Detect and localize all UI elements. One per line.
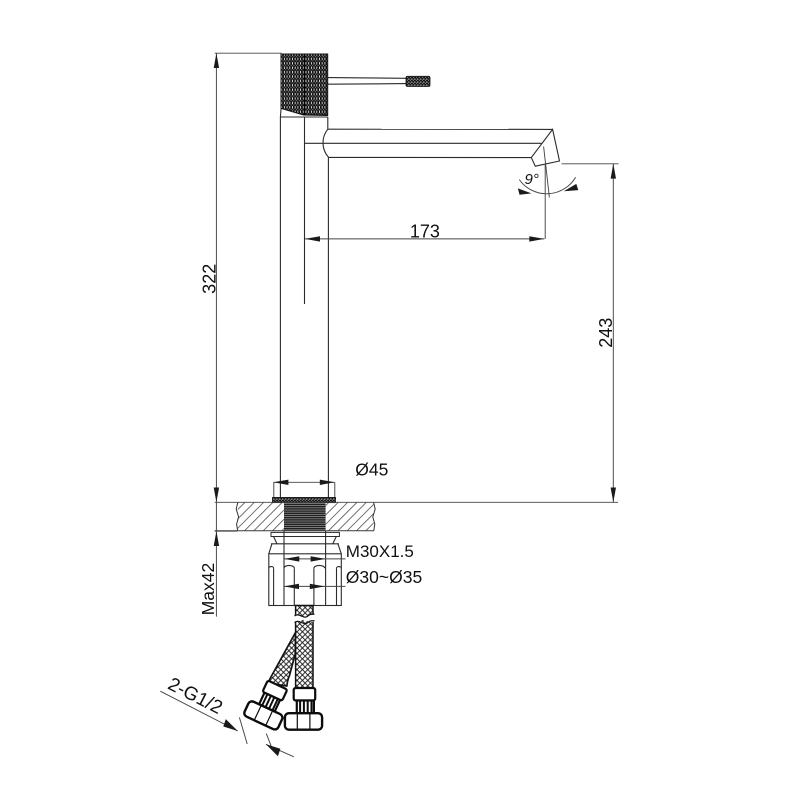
svg-text:173: 173 [410,221,440,241]
svg-text:Ø45: Ø45 [355,459,388,479]
svg-text:243: 243 [596,318,616,348]
svg-text:9°: 9° [525,171,539,188]
svg-text:Ø30~Ø35: Ø30~Ø35 [346,567,422,587]
svg-text:M30X1.5: M30X1.5 [346,542,414,561]
svg-text:322: 322 [199,264,219,294]
svg-text:Max42: Max42 [198,563,218,616]
